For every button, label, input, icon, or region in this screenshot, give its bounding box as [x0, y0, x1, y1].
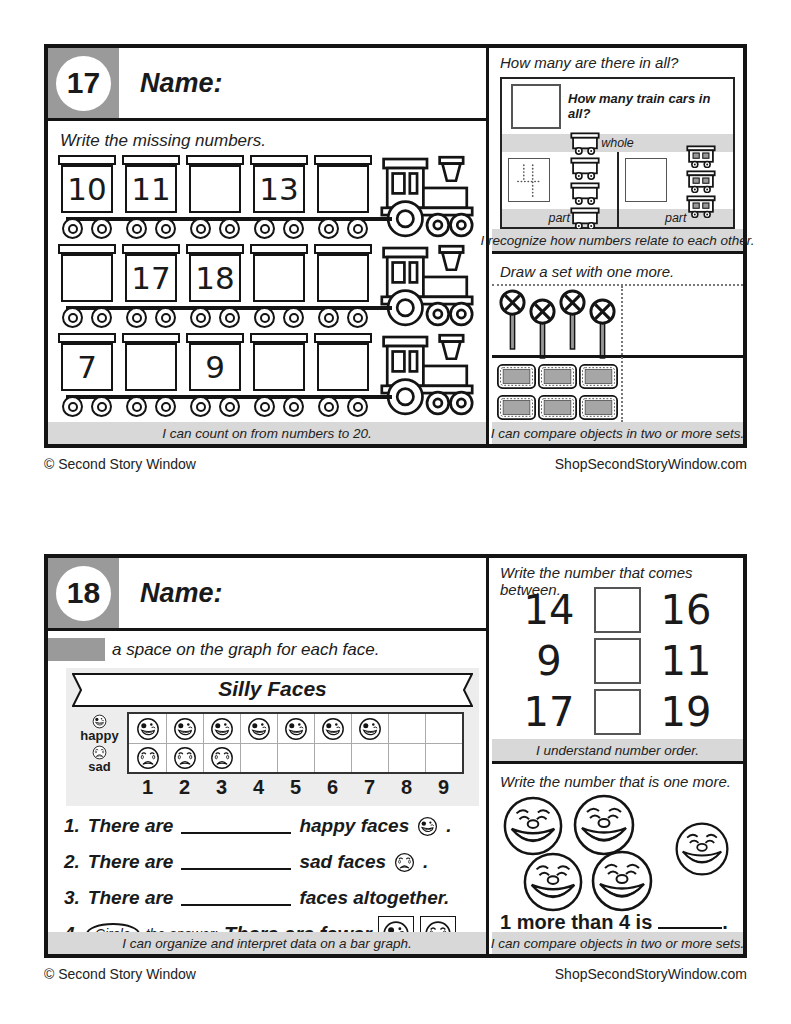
axis-tick: 3: [203, 776, 240, 799]
train-car: [314, 333, 372, 417]
website-text: ShopSecondStoryWindow.com: [555, 456, 747, 472]
number-between-rows: 14 16 9 11 17 19: [492, 585, 743, 738]
graph-cell[interactable]: [129, 744, 166, 772]
card18-badge-number: 18: [67, 576, 100, 610]
one-more-statement: 1 more than 4 is .: [500, 911, 737, 934]
number-between-section: Write the number that comes between. 14 …: [492, 558, 743, 764]
sad-row-label: sad: [72, 743, 127, 774]
wheel-icon: [91, 396, 112, 417]
wheel-icon: [219, 396, 240, 417]
car-number-box[interactable]: 7: [61, 343, 113, 391]
question-text: .: [446, 815, 451, 837]
graph-row-labels: happy sad: [72, 712, 127, 774]
wheel-icon: [318, 307, 339, 328]
wheel-icon: [254, 396, 275, 417]
right-number: 11: [653, 641, 719, 681]
left-number: 9: [516, 641, 582, 681]
wheel-icon: [347, 396, 368, 417]
graph-cell[interactable]: [425, 744, 462, 772]
graph-title: Silly Faces: [72, 677, 473, 701]
laughing-face-icon: [502, 795, 564, 857]
railroad-crossing-sign-icon: [528, 298, 557, 360]
question-3: 3. There are faces altogether.: [64, 880, 482, 916]
part-right-answer-box[interactable]: [625, 158, 667, 202]
train-car: 9: [186, 333, 244, 417]
train-engine-icon: [380, 333, 474, 417]
between-row: 17 19: [492, 687, 743, 737]
laughing-face-icon: [522, 851, 584, 913]
car-roof: [250, 244, 308, 254]
copyright-text: © Second Story Window: [44, 966, 196, 982]
ticket-icon: [538, 395, 577, 420]
railroad-crossing-sign-icon: [588, 298, 617, 360]
draw-one-more-grid: [492, 284, 743, 422]
wheel-icon: [155, 307, 176, 328]
happy-face-icon: [210, 717, 234, 741]
train-car: [186, 155, 244, 239]
train-car: 13: [250, 155, 308, 239]
wheel-icon: [254, 307, 275, 328]
car-number-box[interactable]: [125, 343, 177, 391]
right-number: 19: [653, 692, 719, 732]
card17-badge: 17: [56, 56, 111, 111]
car-roof: [186, 244, 244, 254]
page-footer-card18: © Second Story Window ShopSecondStoryWin…: [44, 966, 747, 982]
train-car: [314, 244, 372, 328]
graph-cell[interactable]: [314, 744, 351, 772]
graph-cell[interactable]: [425, 714, 462, 743]
car-number: 11: [131, 174, 170, 205]
car-number-box[interactable]: [253, 254, 305, 302]
train-car-icon: [570, 157, 600, 180]
train-cars-question: How many train cars in all?: [568, 79, 732, 134]
wheel-icon: [155, 396, 176, 417]
wheel-icon: [254, 218, 275, 239]
statement-text: 1 more than 4 is: [500, 911, 652, 934]
card18-left-standard-strip: I can organize and interpret data on a b…: [48, 932, 486, 954]
axis-tick: 4: [240, 776, 277, 799]
card17-right-bottom-standard-strip: I can compare objects in two or more set…: [492, 422, 743, 444]
graph-cell[interactable]: [388, 744, 425, 772]
question-text: faces altogether.: [299, 887, 449, 909]
wheel-icon: [155, 218, 176, 239]
train-row-3: 7 9: [58, 333, 480, 417]
car-roof: [186, 155, 244, 165]
car-roof: [122, 155, 180, 165]
axis-tick: 5: [277, 776, 314, 799]
ticket-icon: [497, 395, 536, 420]
wheel-icon: [62, 218, 83, 239]
answer-blank[interactable]: [181, 854, 291, 870]
question-number: 3.: [64, 887, 80, 909]
train-car-icon: [686, 145, 716, 168]
worksheet-card-18: 18 Name: a space on the graph for each f…: [44, 554, 747, 958]
happy-row-label: happy: [72, 712, 127, 743]
question-text: There are: [88, 887, 174, 909]
sad-face-icon: [210, 746, 234, 770]
car-roof: [122, 333, 180, 343]
graph-cell[interactable]: [277, 714, 314, 743]
wheel-icon: [126, 307, 147, 328]
graph-cell[interactable]: [277, 744, 314, 772]
answer-blank[interactable]: [181, 890, 291, 906]
car-number-box[interactable]: 11: [125, 165, 177, 213]
question-number: 1.: [64, 815, 80, 837]
ticket-icon: [497, 364, 536, 389]
card18-left-column: 18 Name: a space on the graph for each f…: [48, 558, 489, 954]
card18-name-label: Name:: [140, 578, 223, 609]
wheel-icon: [91, 218, 112, 239]
card17-right-top-standard-strip: I recognize how numbers relate to each o…: [492, 229, 743, 251]
train-car: [250, 244, 308, 328]
train-car-icon: [570, 132, 600, 155]
sad-face-icon: [173, 746, 197, 770]
part-right: [617, 152, 734, 209]
car-number-box[interactable]: [253, 343, 305, 391]
car-number-box[interactable]: 13: [253, 165, 305, 213]
train-car-icon: [686, 195, 716, 218]
happy-face-icon: [92, 714, 107, 729]
sad-label-text: sad: [88, 760, 110, 773]
draw-one-more-prompt: Draw a set with one more.: [500, 263, 739, 280]
wheel-icon: [190, 218, 211, 239]
card18-right-top-standard-strip: I understand number order.: [492, 739, 743, 761]
car-roof: [250, 333, 308, 343]
graph-cell[interactable]: [129, 714, 166, 743]
happy-face-icon: [358, 717, 382, 741]
copyright-text: © Second Story Window: [44, 456, 196, 472]
one-more-section: Write the number that is one more. 1 mor…: [492, 767, 743, 954]
wheel-icon: [190, 396, 211, 417]
train-car: [314, 155, 372, 239]
draw-space-tickets[interactable]: [623, 358, 743, 422]
card18-header: 18 Name:: [48, 558, 486, 631]
sad-face-icon: [394, 852, 415, 873]
card17-trains-prompt: Write the missing numbers.: [60, 131, 266, 151]
happy-face-icon: [284, 717, 308, 741]
wheel-icon: [283, 396, 304, 417]
between-answer-box[interactable]: [594, 638, 641, 684]
happy-face-icon: [173, 717, 197, 741]
covered-word-box: [48, 638, 105, 661]
happy-face-icon: [136, 717, 160, 741]
ticket-icon: [579, 395, 618, 420]
car-roof: [58, 244, 116, 254]
left-number: 14: [516, 590, 582, 630]
wheel-icon: [219, 218, 240, 239]
laughing-faces-set: [498, 793, 739, 907]
card17-left-standard-strip: I can count on from numbers to 20.: [48, 422, 486, 444]
car-roof: [314, 155, 372, 165]
car-number-box[interactable]: [317, 254, 369, 302]
wheel-icon: [347, 218, 368, 239]
graph-cell[interactable]: [314, 714, 351, 743]
tickets-set: [497, 364, 621, 420]
card17-header: 17 Name:: [48, 48, 486, 121]
part-left-answer-box[interactable]: [508, 158, 550, 202]
trains-area: 10 11 13 17 18 7: [58, 155, 480, 422]
train-car: 10: [58, 155, 116, 239]
graph-prompt-row: a space on the graph for each face.: [48, 638, 486, 662]
car-number-box[interactable]: 10: [61, 165, 113, 213]
car-number-box[interactable]: 18: [189, 254, 241, 302]
graph-cell[interactable]: [203, 714, 240, 743]
crossing-signs-row: [492, 286, 743, 355]
graph-title-banner: Silly Faces: [72, 673, 473, 707]
between-row: 14 16: [492, 585, 743, 635]
train-car-icon: [570, 207, 600, 230]
graph-cell[interactable]: [240, 744, 277, 772]
question-1: 1. There are happy faces .: [64, 808, 482, 844]
wheel-icon: [190, 307, 211, 328]
wheel-icon: [318, 218, 339, 239]
axis-tick: 6: [314, 776, 351, 799]
car-number-box[interactable]: [317, 343, 369, 391]
sad-face-icon: [92, 745, 107, 760]
happy-label-text: happy: [80, 729, 118, 742]
car-number-box[interactable]: 17: [125, 254, 177, 302]
ticket-icon: [538, 364, 577, 389]
statement-text: .: [722, 911, 728, 934]
happy-face-icon: [247, 717, 271, 741]
car-roof: [314, 333, 372, 343]
graph-cell[interactable]: [203, 744, 240, 772]
car-roof: [250, 155, 308, 165]
card18-badge-square: 18: [48, 558, 119, 628]
graph-questions: 1. There are happy faces . 2. There are …: [64, 808, 482, 952]
car-number: 13: [259, 174, 298, 205]
question-text: .: [423, 851, 428, 873]
car-number-box[interactable]: 9: [189, 343, 241, 391]
happy-face-icon: [321, 717, 345, 741]
whole-answer-box[interactable]: [511, 84, 561, 129]
part-left: [502, 152, 617, 209]
between-row: 9 11: [492, 636, 743, 686]
wheel-icon: [126, 218, 147, 239]
part-left-train-cars: [554, 154, 616, 208]
train-engine-icon: [380, 244, 474, 328]
card17-right-column: How many are there in all? How many trai…: [492, 48, 743, 444]
wheel-icon: [283, 307, 304, 328]
sad-face-icon: [136, 746, 160, 770]
dotted-column-divider: [621, 286, 623, 422]
graph-prompt: a space on the graph for each face.: [112, 640, 379, 660]
question-number: 2.: [64, 851, 80, 873]
car-roof: [186, 333, 244, 343]
graph-cell[interactable]: [388, 714, 425, 743]
train-engine-icon: [380, 155, 474, 239]
draw-one-more-section: Draw a set with one more. I can compare …: [492, 257, 743, 444]
graph-cell[interactable]: [166, 744, 203, 772]
wheel-icon: [62, 396, 83, 417]
right-number: 16: [653, 590, 719, 630]
train-car: 18: [186, 244, 244, 328]
sad-row: [129, 743, 462, 772]
tickets-row: [492, 358, 743, 422]
train-car: [58, 244, 116, 328]
one-more-answer-blank[interactable]: [658, 913, 722, 929]
card17-badge-square: 17: [48, 48, 119, 118]
part-right-train-cars: [671, 154, 733, 208]
laughing-face-icon: [590, 849, 654, 913]
crossing-signs-set: [498, 289, 617, 360]
car-roof: [58, 333, 116, 343]
axis-tick: 7: [351, 776, 388, 799]
wheel-icon: [318, 396, 339, 417]
graph-cell[interactable]: [166, 714, 203, 743]
worksheet-card-17: 17 Name: Write the missing numbers. 10 1…: [44, 44, 747, 448]
axis-tick: 9: [425, 776, 462, 799]
whole-row: How many train cars in all?: [502, 79, 733, 134]
car-number: 10: [67, 174, 106, 205]
website-text: ShopSecondStoryWindow.com: [555, 966, 747, 982]
happy-row: [129, 714, 462, 743]
wheel-icon: [347, 307, 368, 328]
train-car: 11: [122, 155, 180, 239]
question-text: happy faces: [299, 815, 409, 837]
answer-blank[interactable]: [181, 818, 291, 834]
between-answer-box[interactable]: [594, 689, 641, 735]
question-2: 2. There are sad faces .: [64, 844, 482, 880]
part-part-whole-box: How many train cars in all? whole: [500, 77, 735, 229]
how-many-prompt: How many are there in all?: [500, 54, 739, 71]
railroad-crossing-sign-icon: [558, 289, 587, 351]
question-text: There are: [88, 815, 174, 837]
train-car: [250, 333, 308, 417]
axis-tick: 1: [129, 776, 166, 799]
card17-badge-number: 17: [67, 66, 100, 100]
question-text: sad faces: [299, 851, 386, 873]
wheel-icon: [91, 307, 112, 328]
car-roof: [122, 244, 180, 254]
wheel-icon: [283, 218, 304, 239]
car-number: 17: [131, 263, 170, 294]
car-number: 7: [77, 352, 97, 383]
car-number: 18: [195, 263, 234, 294]
train-row-2: 17 18: [58, 244, 480, 328]
card18-right-bottom-standard-strip: I can compare objects in two or more set…: [492, 932, 743, 954]
graph-axis: 1 2 3 4 5 6 7 8 9: [129, 776, 462, 799]
car-number-box[interactable]: [317, 165, 369, 213]
graph-cell[interactable]: [351, 714, 388, 743]
car-number: 9: [205, 352, 225, 383]
laughing-face-icon: [572, 793, 636, 857]
railroad-crossing-sign-icon: [498, 289, 527, 351]
car-number-box[interactable]: [61, 254, 113, 302]
axis-tick: 8: [388, 776, 425, 799]
left-number: 17: [516, 692, 582, 732]
train-car-icon: [570, 182, 600, 205]
axis-tick: 2: [166, 776, 203, 799]
train-car-icon: [686, 170, 716, 193]
graph-grid: [127, 712, 464, 774]
parts-row: [502, 152, 733, 209]
car-number-box[interactable]: [189, 165, 241, 213]
graph-cell[interactable]: [351, 744, 388, 772]
wheel-icon: [62, 307, 83, 328]
wheel-icon: [219, 307, 240, 328]
car-roof: [314, 244, 372, 254]
page-footer-card17: © Second Story Window ShopSecondStoryWin…: [44, 456, 747, 472]
wheel-icon: [126, 396, 147, 417]
card17-name-label: Name:: [140, 68, 223, 99]
train-car: 7: [58, 333, 116, 417]
draw-space-signs[interactable]: [623, 286, 743, 355]
train-row-1: 10 11 13: [58, 155, 480, 239]
card18-badge: 18: [56, 566, 111, 621]
ticket-icon: [579, 364, 618, 389]
how-many-in-all-section: How many are there in all? How many trai…: [492, 48, 743, 254]
card17-left-column: 17 Name: Write the missing numbers. 10 1…: [48, 48, 489, 444]
worksheet-page: 17 Name: Write the missing numbers. 10 1…: [0, 0, 791, 1024]
silly-faces-graph-panel: Silly Faces happy sad: [66, 668, 479, 806]
laughing-face-icon: [674, 821, 730, 877]
between-answer-box[interactable]: [594, 587, 641, 633]
one-more-prompt: Write the number that is one more.: [500, 773, 739, 790]
graph-cell[interactable]: [240, 714, 277, 743]
card18-right-column: Write the number that comes between. 14 …: [492, 558, 743, 954]
traceable-numeral-4: [512, 160, 546, 200]
car-roof: [58, 155, 116, 165]
train-car: 17: [122, 244, 180, 328]
happy-face-icon: [417, 816, 438, 837]
question-text: There are: [88, 851, 174, 873]
train-car: [122, 333, 180, 417]
